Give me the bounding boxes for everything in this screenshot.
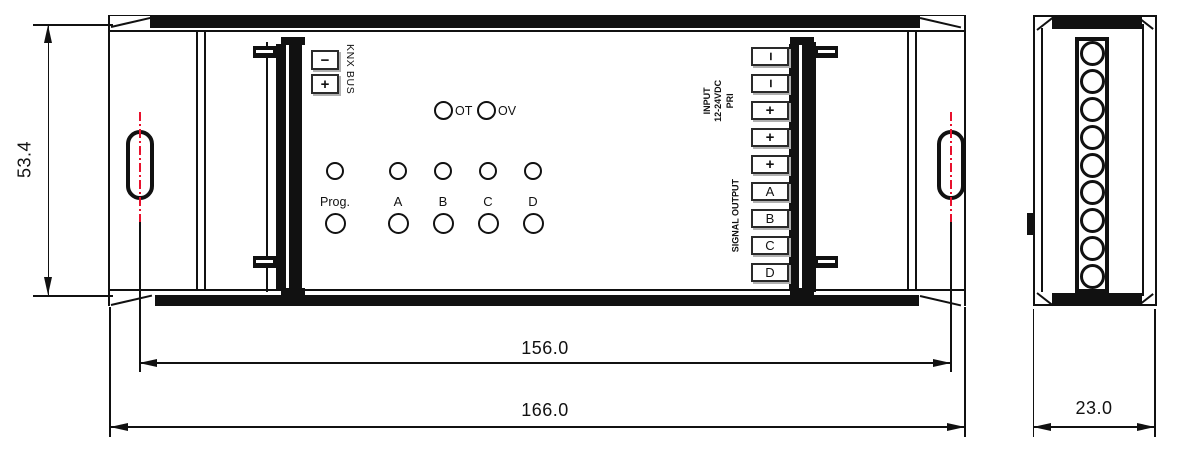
led-a [389, 162, 407, 180]
terminal-ch-d: D [751, 263, 789, 282]
plus-symbol: + [321, 77, 330, 92]
flange-line [909, 289, 964, 291]
ot-indicator [434, 101, 453, 120]
channel-letter: A [766, 185, 775, 198]
button-b [433, 213, 454, 234]
flange-line [909, 30, 964, 32]
button-d [523, 213, 544, 234]
extension-line [1033, 309, 1035, 437]
arrowhead-up [44, 25, 52, 43]
terminal-screw [1080, 208, 1105, 233]
prog-button [325, 213, 346, 234]
ov-indicator [477, 101, 496, 120]
signal-output-label: SIGNAL OUTPUT [730, 169, 741, 263]
side-clip-tab [1027, 213, 1034, 235]
bottom-edge-band [155, 295, 920, 306]
mounting-width-value: 156.0 [495, 338, 595, 359]
arrowhead-right [947, 423, 965, 431]
dimension-drawing: − + KNX BUS OT OV Prog. A B C D INPUT 12 [0, 0, 1200, 474]
height-value: 53.4 [15, 125, 36, 195]
terminal-plus-1: + [751, 101, 789, 120]
terminal-minus-2: − [751, 74, 789, 93]
dimension-line [139, 362, 951, 364]
side-left-line [1041, 28, 1043, 292]
arrowhead-right [933, 359, 951, 367]
terminal-screw [1080, 41, 1105, 66]
terminal-ch-a: A [751, 182, 789, 201]
terminal-ch-b: B [751, 209, 789, 228]
terminal-screw [1080, 264, 1105, 289]
channel-letter: D [765, 266, 774, 279]
arrowhead-down [44, 277, 52, 295]
flange-line [110, 289, 204, 291]
side-right-line [1142, 24, 1144, 296]
channel-letter: B [766, 212, 775, 225]
minus-symbol: − [321, 53, 330, 68]
knx-plus-terminal: + [311, 74, 339, 94]
prog-label: Prog. [308, 195, 362, 209]
terminal-ch-c: C [751, 236, 789, 255]
terminal-screw [1080, 236, 1105, 261]
extension-line [950, 222, 952, 372]
ov-label: OV [498, 104, 520, 118]
button-a [388, 213, 409, 234]
top-edge-band [150, 16, 920, 28]
extension-line [964, 307, 966, 437]
extension-line [109, 307, 111, 437]
endcap-line [196, 30, 198, 291]
arrowhead-left [1033, 423, 1051, 431]
endcap-line [915, 30, 917, 291]
arrowhead-left [139, 359, 157, 367]
extension-line [33, 295, 113, 297]
led-c [479, 162, 497, 180]
overall-width-value: 166.0 [495, 400, 595, 421]
arrowhead-left [110, 423, 128, 431]
knx-bus-label: KNX BUS [344, 44, 356, 102]
flange-line [110, 30, 204, 32]
channel-letter: C [765, 239, 774, 252]
button-c [478, 213, 499, 234]
terminal-screw [1080, 97, 1105, 122]
depth-value: 23.0 [1044, 398, 1144, 419]
led-d [524, 162, 542, 180]
ot-label: OT [455, 104, 477, 118]
channel-a-label: A [388, 194, 408, 209]
terminal-screw [1080, 69, 1105, 94]
minus-symbol: − [762, 79, 777, 88]
plus-symbol: + [766, 130, 775, 145]
centerline-left [139, 112, 141, 222]
input-power-label: INPUT 12-24VDC PRI [702, 69, 736, 133]
extension-line [1154, 309, 1156, 437]
dimension-line [110, 426, 965, 428]
terminal-plus-2: + [751, 128, 789, 147]
side-top-band [1052, 16, 1142, 29]
terminal-minus-1: − [751, 47, 789, 66]
terminal-screw [1080, 180, 1105, 205]
dimension-line [48, 25, 50, 295]
minus-symbol: − [762, 52, 777, 61]
arrowhead-right [1137, 423, 1155, 431]
extension-line [139, 222, 141, 372]
side-terminal-strip [1075, 37, 1109, 293]
terminal-plus-3: + [751, 155, 789, 174]
side-bottom-band [1052, 293, 1142, 305]
terminal-screw [1080, 125, 1105, 150]
knx-minus-terminal: − [311, 50, 339, 70]
channel-c-label: C [478, 194, 498, 209]
channel-d-label: D [523, 194, 543, 209]
plus-symbol: + [766, 157, 775, 172]
led-b [434, 162, 452, 180]
channel-b-label: B [433, 194, 453, 209]
centerline-right [950, 112, 952, 222]
led-prog [326, 162, 344, 180]
plus-symbol: + [766, 103, 775, 118]
terminal-screw [1080, 153, 1105, 178]
